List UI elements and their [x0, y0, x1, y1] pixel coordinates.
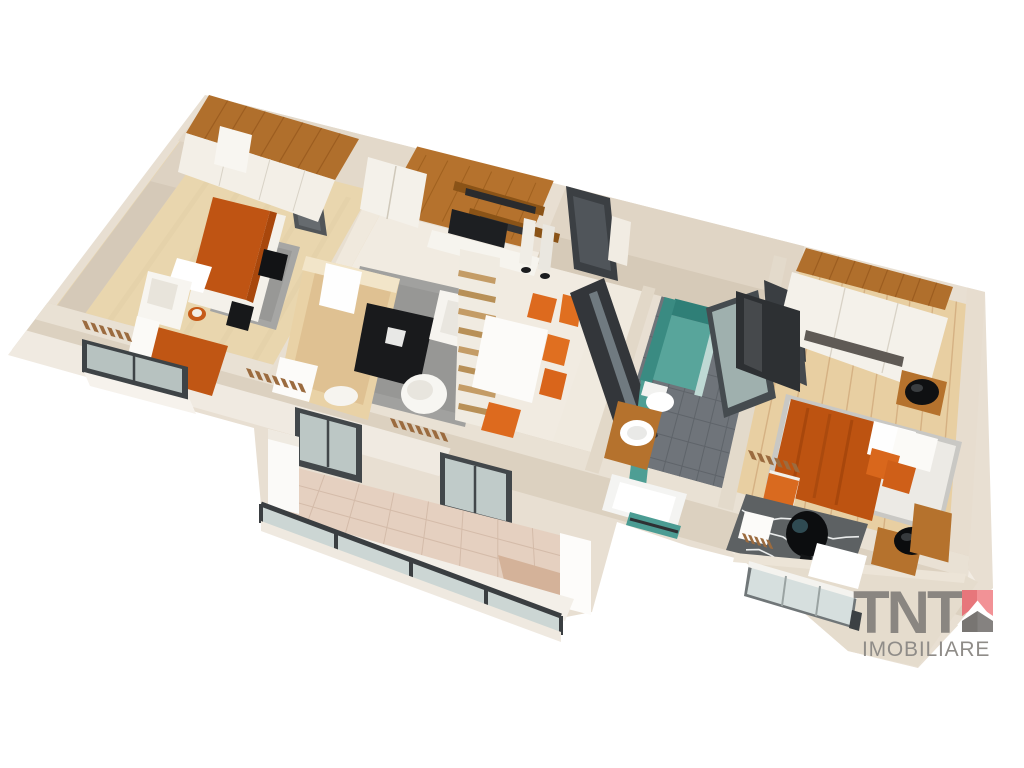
svg-text:IMOBILIARE: IMOBILIARE [862, 638, 990, 661]
svg-text:TNT: TNT [853, 579, 963, 646]
